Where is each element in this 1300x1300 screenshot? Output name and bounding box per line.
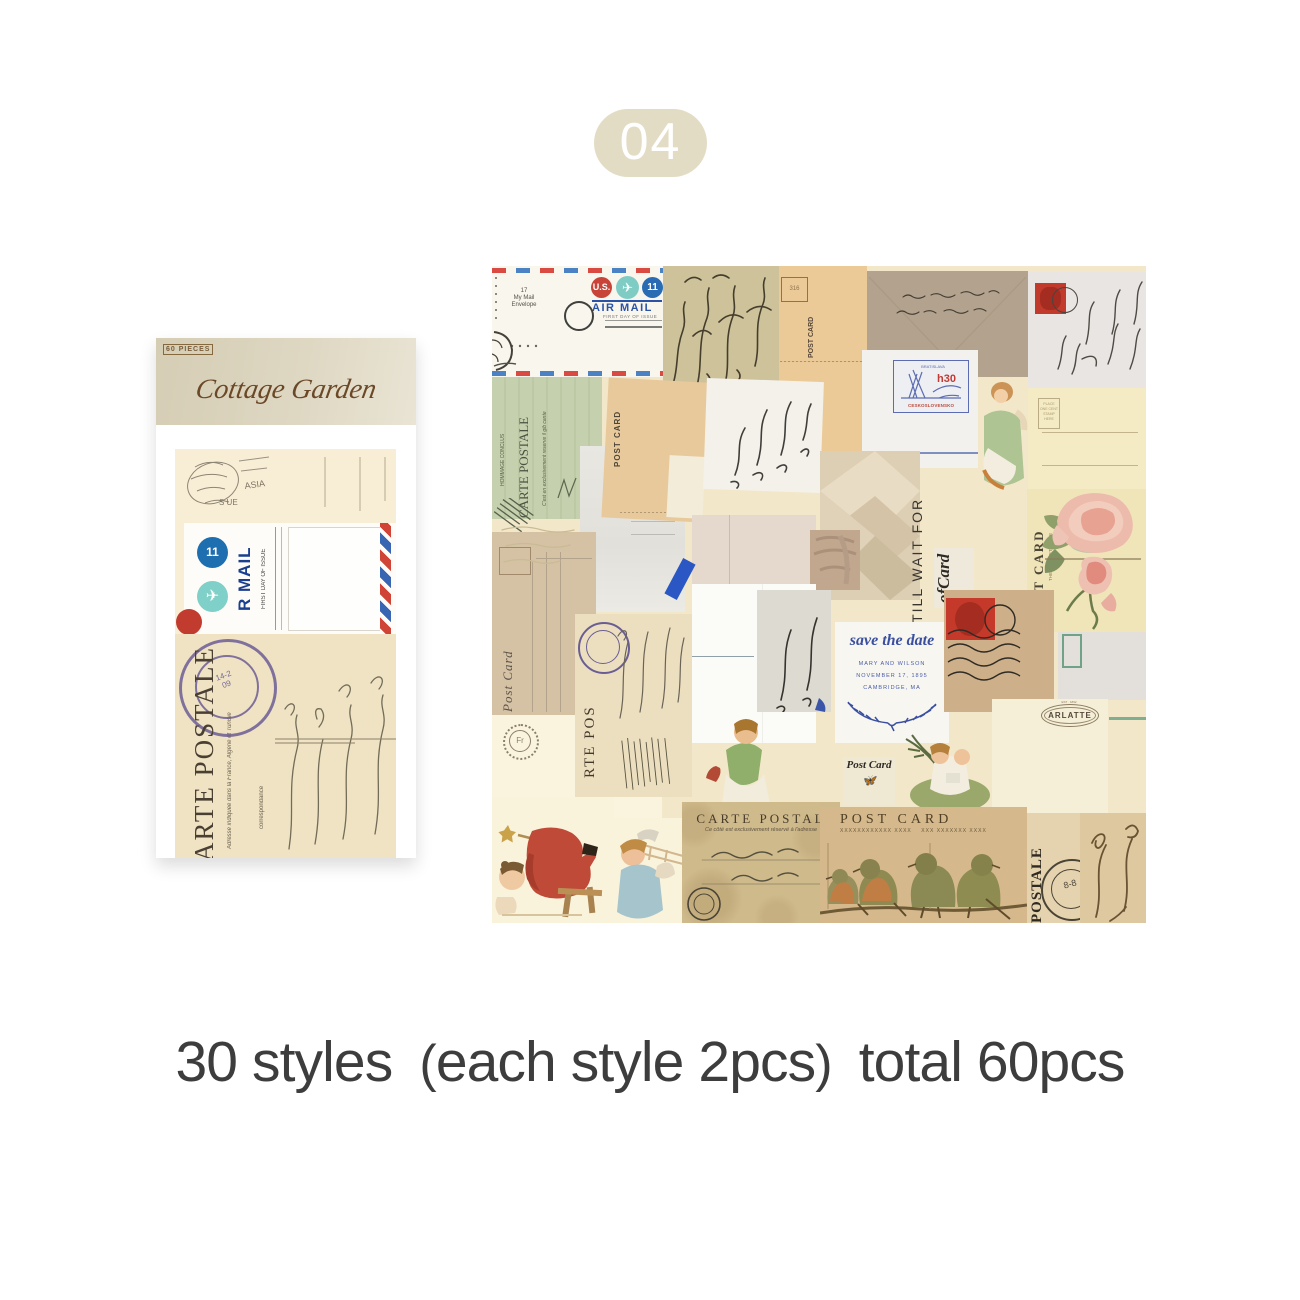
svg-text:CESKOSLOVENSKO: CESKOSLOVENSKO	[908, 403, 954, 408]
svg-text:ASIA: ASIA	[244, 478, 266, 491]
svg-text:h30: h30	[937, 373, 956, 385]
svg-text:BRATISLAVA: BRATISLAVA	[921, 364, 945, 369]
svg-text:S UE: S UE	[219, 498, 238, 507]
